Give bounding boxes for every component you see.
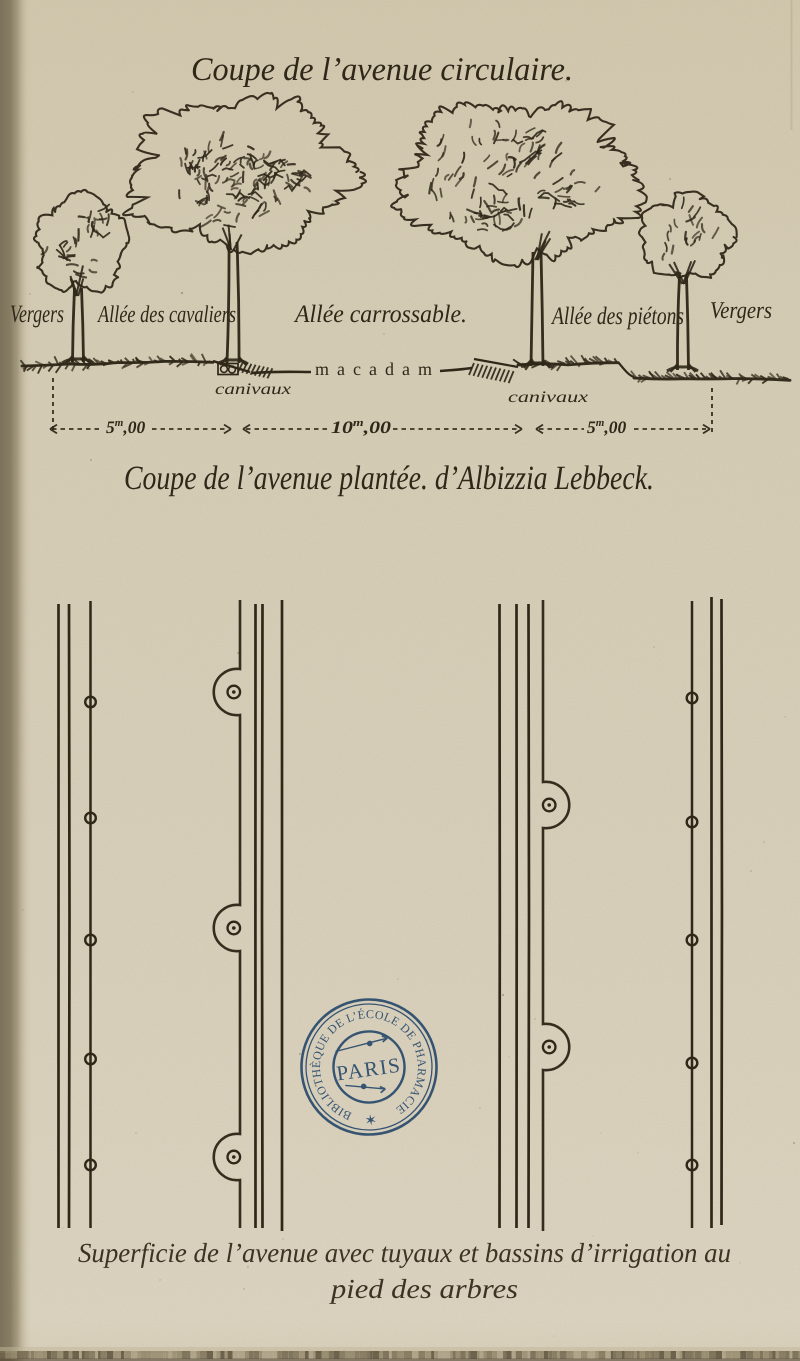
svg-text:canivaux: canivaux: [215, 381, 291, 398]
svg-text:Vergers: Vergers: [10, 301, 64, 328]
svg-text:Allée carrossable.: Allée carrossable.: [293, 301, 467, 328]
svg-text:Superficie de l’avenue avec tu: Superficie de l’avenue avec tuyaux et ba…: [78, 1237, 731, 1268]
svg-text:Vergers: Vergers: [710, 298, 772, 324]
svg-text:5m,00: 5m,00: [587, 417, 626, 437]
svg-text:pied des arbres: pied des arbres: [329, 1273, 518, 1304]
svg-text:Allée des piétons: Allée des piétons: [550, 303, 684, 330]
svg-text:Coupe de l’avenue plantée. d’A: Coupe de l’avenue plantée. d’Albizzia Le…: [124, 460, 654, 497]
svg-text:Allée des cavaliers: Allée des cavaliers: [96, 302, 236, 328]
svg-text:✶: ✶: [364, 1112, 379, 1130]
svg-text:macadam: macadam: [315, 359, 437, 379]
svg-text:Coupe de l’avenue circulaire.: Coupe de l’avenue circulaire.: [191, 52, 573, 88]
svg-text:5m,00: 5m,00: [106, 417, 145, 437]
svg-text:canivaux: canivaux: [508, 389, 588, 406]
